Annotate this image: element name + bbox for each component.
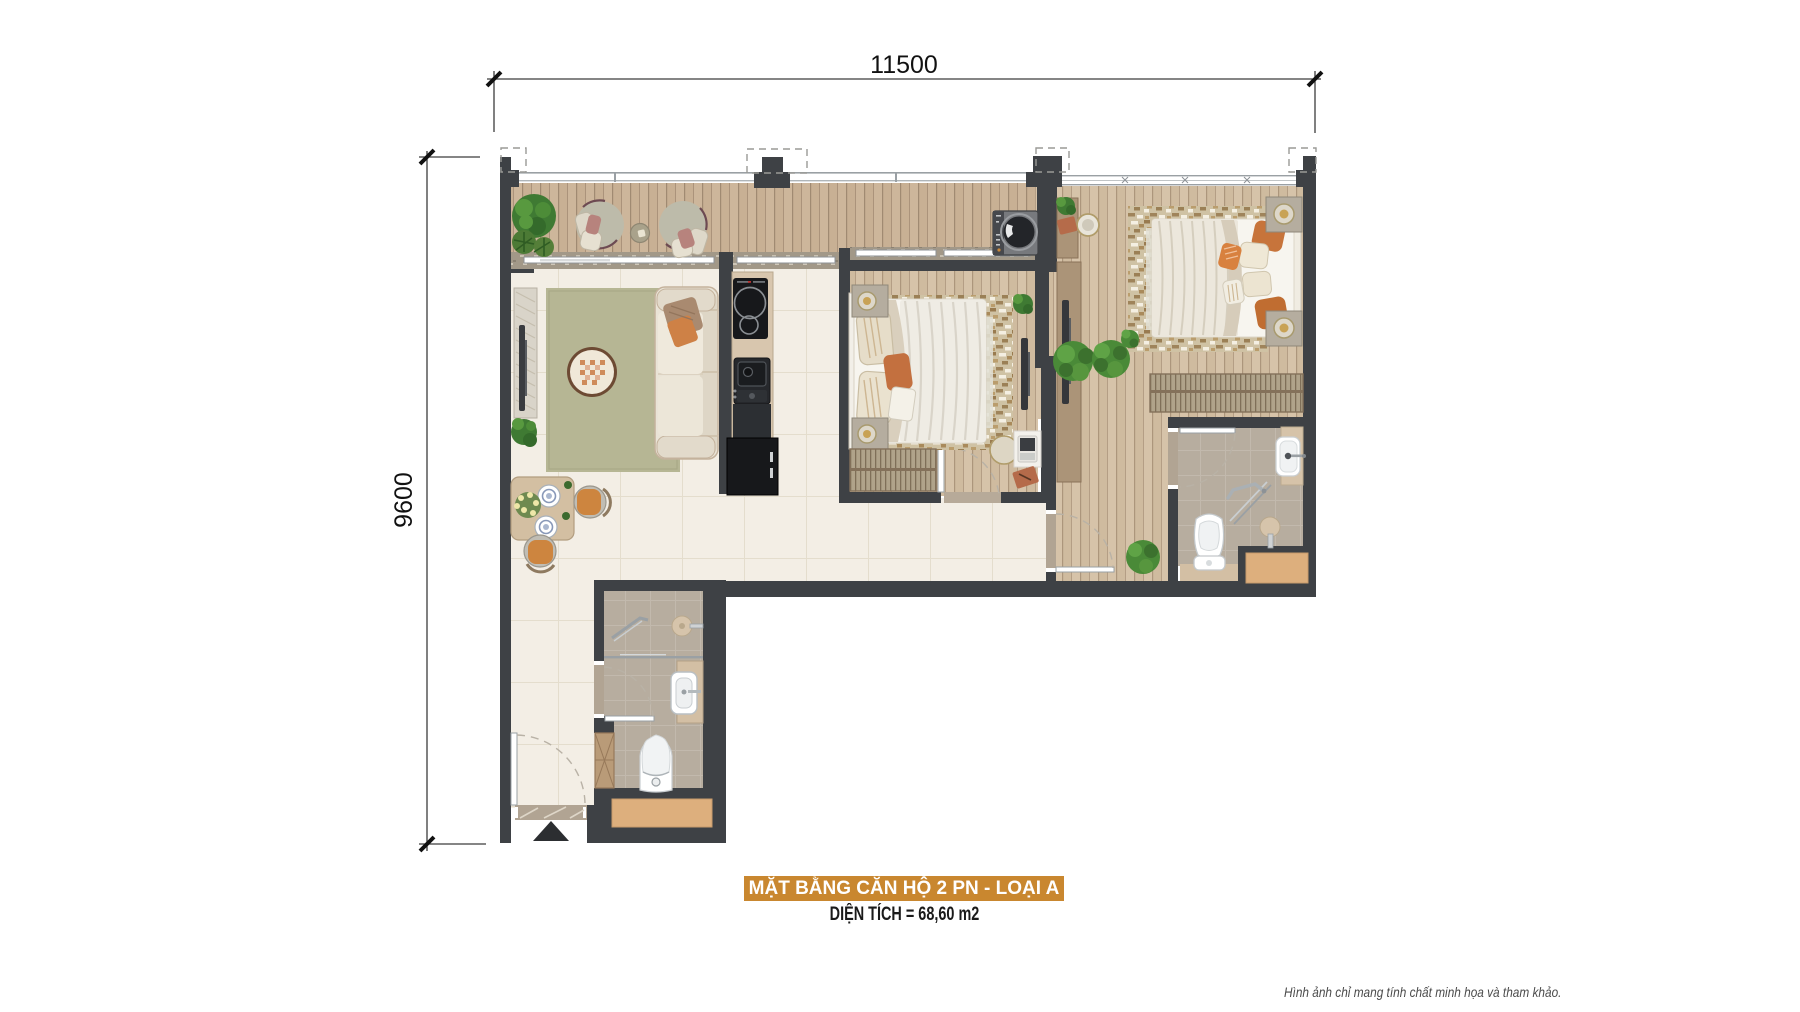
- svg-text:11500: 11500: [870, 51, 938, 79]
- svg-text:9600: 9600: [390, 472, 418, 528]
